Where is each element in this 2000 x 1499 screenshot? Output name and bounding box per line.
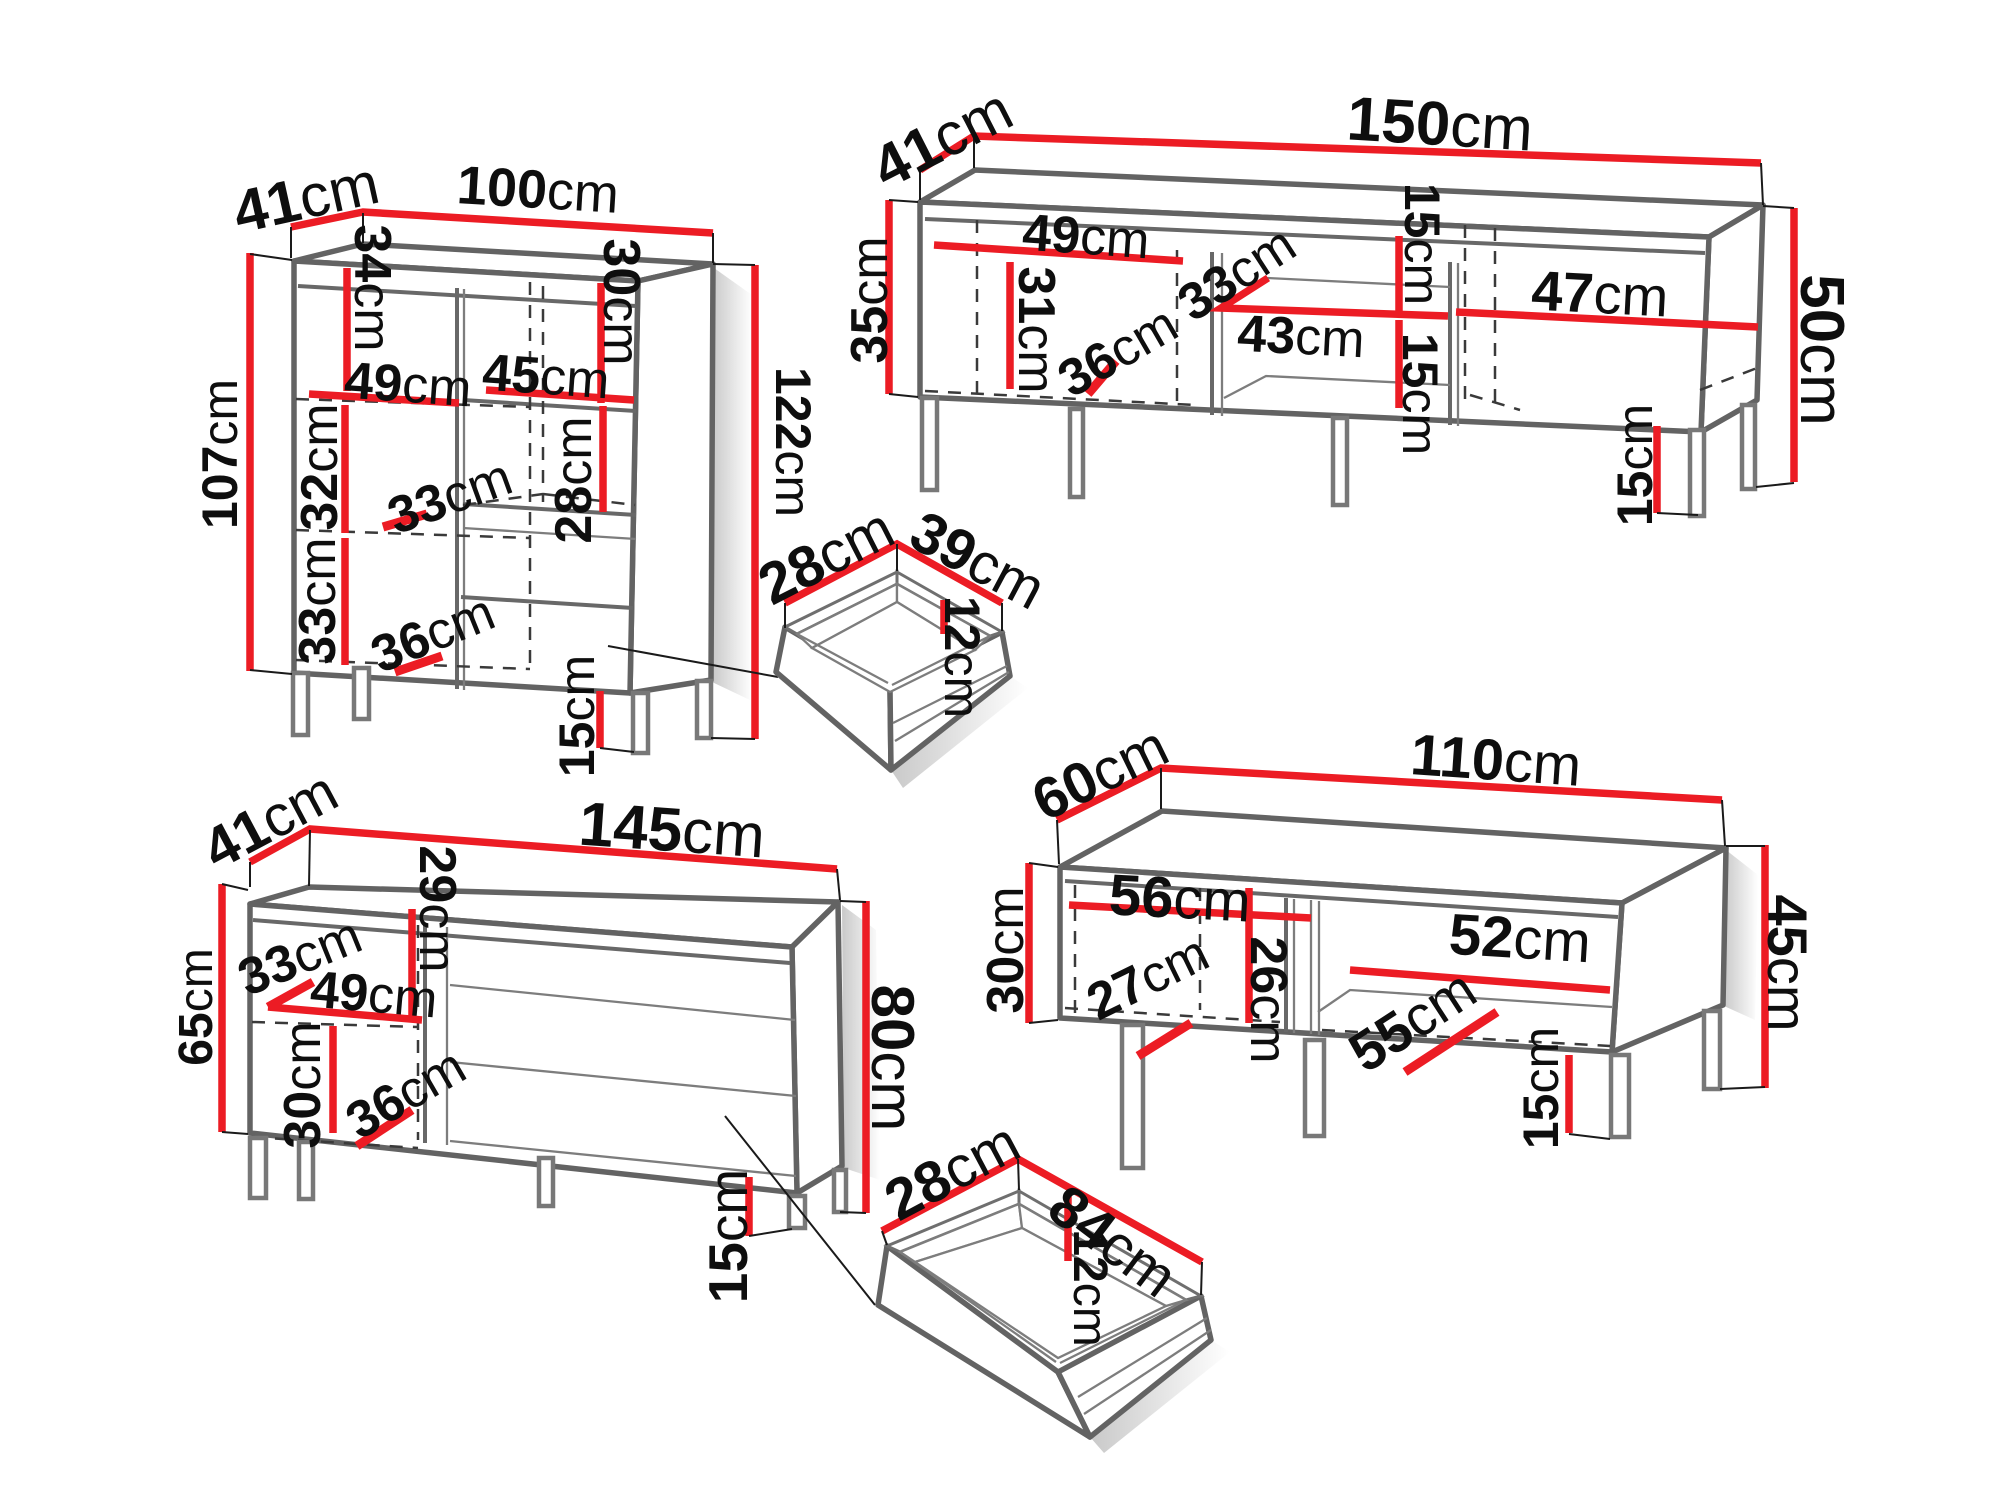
svg-text:12cm: 12cm [934,596,990,718]
svg-text:34cm: 34cm [343,224,401,351]
svg-text:28cm: 28cm [545,416,603,543]
svg-text:15cm: 15cm [1607,404,1663,526]
svg-text:15cm: 15cm [697,1169,759,1304]
svg-text:110cm: 110cm [1408,722,1583,799]
svg-text:30cm: 30cm [274,1021,332,1148]
svg-text:50cm: 50cm [1788,274,1857,426]
svg-text:15cm: 15cm [1513,1027,1569,1149]
svg-text:56cm: 56cm [1107,862,1252,934]
svg-text:30cm: 30cm [977,886,1035,1013]
svg-text:45cm: 45cm [481,344,612,411]
svg-text:150cm: 150cm [1345,84,1535,164]
svg-text:100cm: 100cm [455,155,620,225]
svg-text:15cm: 15cm [1392,333,1448,455]
svg-text:35cm: 35cm [841,236,899,363]
svg-text:31cm: 31cm [1007,266,1065,393]
svg-text:107cm: 107cm [192,379,248,529]
svg-text:65cm: 65cm [170,948,223,1065]
svg-text:15cm: 15cm [549,655,605,777]
svg-text:29cm: 29cm [408,845,466,972]
svg-text:12cm: 12cm [1064,1229,1117,1346]
svg-text:145cm: 145cm [577,789,767,871]
svg-text:30cm: 30cm [592,238,650,365]
svg-text:47cm: 47cm [1530,258,1670,328]
svg-text:80cm: 80cm [860,985,927,1132]
svg-text:43cm: 43cm [1236,305,1366,370]
svg-text:45cm: 45cm [1757,895,1820,1032]
svg-text:33cm: 33cm [289,537,347,664]
svg-text:49cm: 49cm [1021,204,1152,271]
svg-text:122cm: 122cm [765,367,821,517]
svg-text:32cm: 32cm [291,403,349,530]
svg-text:49cm: 49cm [343,352,474,419]
svg-text:15cm: 15cm [1394,183,1450,305]
svg-text:26cm: 26cm [1239,936,1297,1063]
svg-text:52cm: 52cm [1447,901,1593,975]
